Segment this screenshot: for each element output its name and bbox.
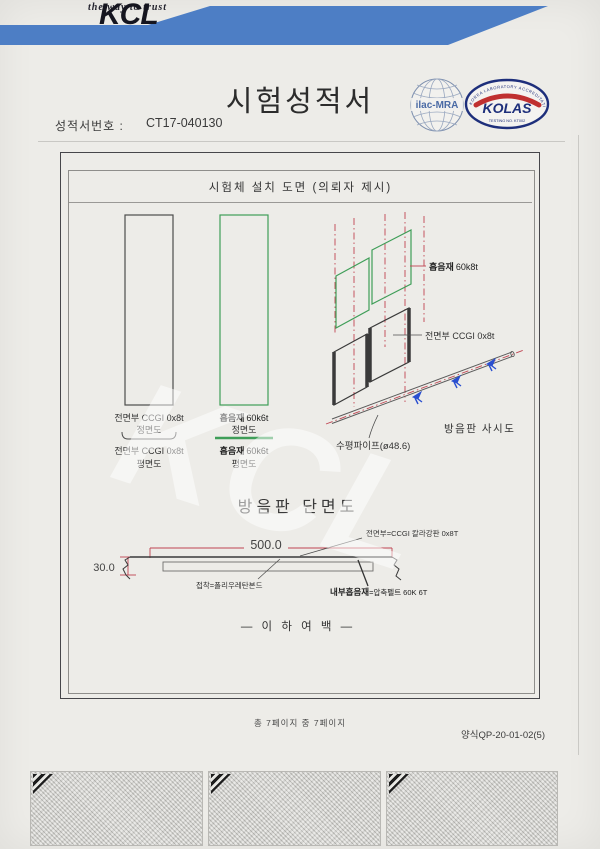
pipe-clamp-icons — [413, 359, 496, 404]
security-strip-3 — [386, 771, 558, 846]
section-absorber-note: 내부흡음재=압축펠트 60K 6T — [330, 587, 428, 597]
absorber-name: 흡음재 — [220, 412, 245, 423]
kcl-logo: KCL — [99, 0, 158, 32]
ilac-label: ilac-MRA — [416, 100, 459, 111]
section-absorber-note-bold: 내부흡음재 — [330, 587, 369, 597]
front-panel-spec: 전면부 CCGI 0x8t — [114, 413, 184, 423]
pipe-label: 수평파이프(ø48.6) — [336, 441, 410, 452]
end-note: — 이 하 여 백 — — [241, 619, 355, 633]
header-rule — [38, 141, 565, 142]
absorber-label: 흡음재60k6t — [220, 412, 269, 423]
report-page: the way to trust KCL 시험성적서 성적서번호 : CT17-… — [0, 0, 600, 849]
scan-edge-line — [578, 135, 579, 755]
absorber-plan-caption: 평면도 — [232, 459, 257, 469]
section-title: 방음판 단면도 — [238, 498, 359, 516]
ilac-mra-logo: ilac-MRA — [408, 76, 466, 134]
report-no-value: CT17-040130 — [146, 116, 222, 130]
iso-absorber-name: 흡음재 — [429, 261, 454, 272]
security-strip-2 — [208, 771, 381, 846]
absorber-elevation-rect — [220, 215, 268, 405]
absorber-plan-name: 흡음재 — [220, 445, 245, 456]
strip-corner-mark — [389, 774, 409, 794]
report-no-label: 성적서번호 : — [55, 117, 124, 134]
technical-drawing: 전면부 CCGI 0x8t 정면도 전면부 CCGI 0x8t 평면도 흡음재6… — [68, 202, 533, 692]
front-panel-elevation-rect — [125, 215, 173, 405]
strip-corner-mark — [211, 774, 231, 794]
iso-absorber-label: 흡음재60k8t — [429, 261, 478, 272]
absorber-front-caption: 정면도 — [232, 425, 257, 435]
iso-absorber-spec: 60k8t — [456, 262, 479, 272]
kolas-logo: KOREA LABORATORY ACCREDITATION SCHEME KO… — [464, 78, 550, 130]
pipe-label-leader — [369, 415, 378, 438]
drawing-box-title: 시험체 설치 도면 (의뢰자 제시) — [68, 179, 533, 195]
front-panel-plan-spec: 전면부 CCGI 0x8t — [114, 446, 184, 456]
section-panel-profile — [123, 557, 401, 580]
absorber-spec: 60k6t — [246, 413, 269, 423]
height-dim-label: 30.0 — [93, 562, 114, 574]
absorber-plan-label: 흡음재60k6t — [220, 445, 269, 456]
form-number: 양식QP-20-01-02(5) — [415, 727, 545, 741]
absorber-plan-spec: 60k6t — [246, 446, 269, 456]
strip-corner-mark — [33, 774, 53, 794]
section-front-note: 전면부=CCGI 칼라강판 0x8T — [366, 528, 459, 538]
kolas-label: KOLAS — [483, 100, 533, 116]
section-absorber-note-rest: =압축펠트 60K 6T — [369, 588, 428, 597]
section-adhesive-note: 접착=폴리우레탄본드 — [196, 580, 263, 590]
iso-caption: 방음판 사시도 — [444, 423, 515, 435]
width-dim-label: 500.0 — [250, 538, 281, 552]
section-front-leader — [300, 538, 362, 556]
section-absorber-leader — [358, 560, 368, 586]
security-strip-1 — [30, 771, 203, 846]
iso-absorber-panel-left — [336, 258, 369, 328]
banner-swoosh-shape — [0, 6, 548, 45]
front-panel-front-caption: 정면도 — [137, 425, 162, 435]
front-panel-plan-caption: 평면도 — [137, 459, 162, 469]
iso-centerlines — [326, 212, 524, 424]
iso-front-label: 전면부 CCGI 0x8t — [425, 331, 495, 341]
kolas-bottom-text: TESTING NO. KT002 — [489, 119, 526, 123]
